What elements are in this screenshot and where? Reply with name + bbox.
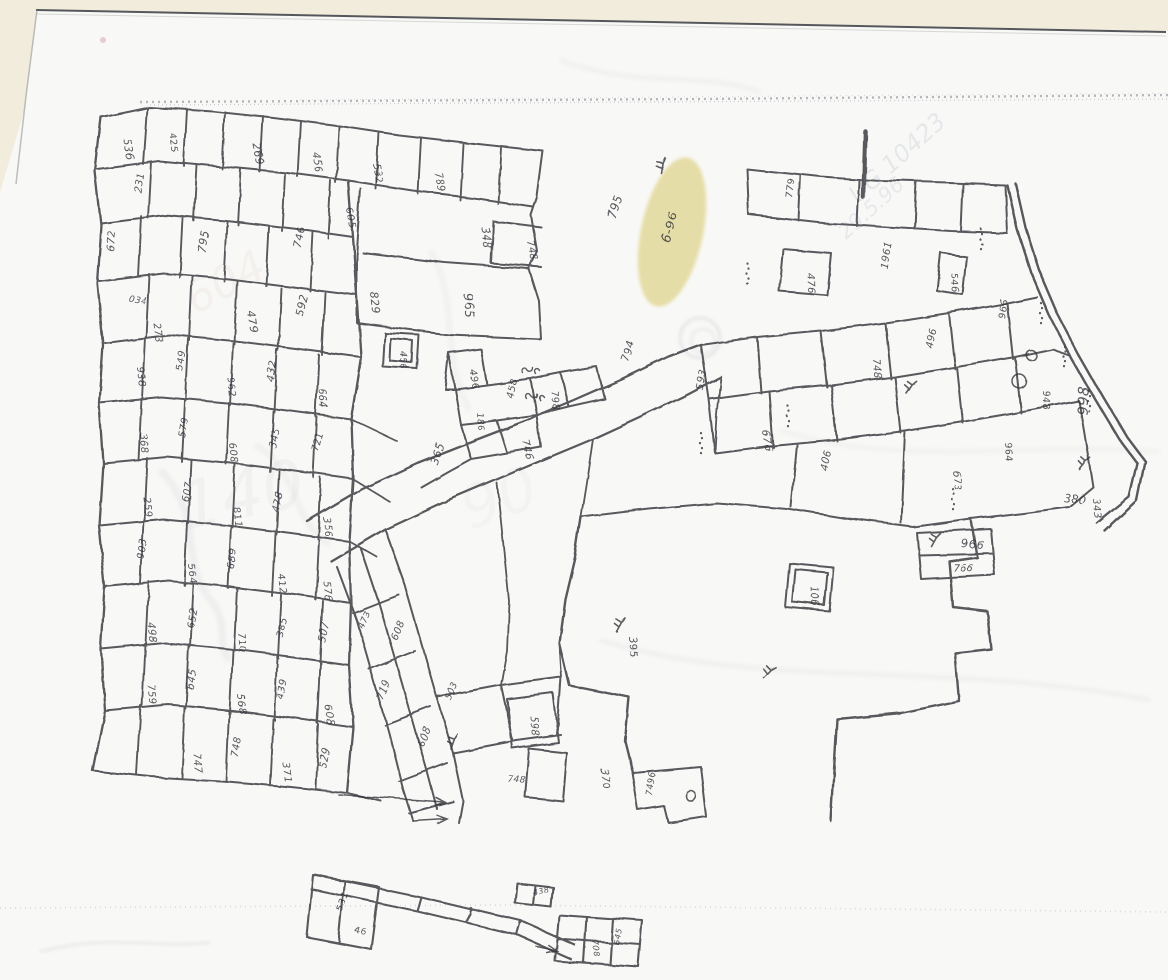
parcel-number: 546	[947, 271, 959, 292]
parcel-number: 368	[135, 431, 148, 453]
parcel-number: 747	[189, 751, 202, 773]
parcel-number: 673	[949, 469, 962, 491]
parcel-number: 748	[506, 773, 526, 785]
parcel-number: 964	[1001, 441, 1014, 463]
parcel-number: 759	[144, 683, 157, 705]
parcel-number: 46	[354, 925, 366, 935]
parcel-number: 748	[869, 357, 882, 379]
parcel-number: 998	[1074, 385, 1092, 414]
parcel-number: 664	[315, 387, 328, 409]
parcel-number: 568	[234, 693, 247, 715]
parcel-number: 259	[139, 495, 152, 517]
parcel-number: 962	[223, 375, 236, 397]
parcel-number: 708	[590, 939, 601, 957]
parcel-number: 395	[625, 635, 640, 659]
parcel-number: 676	[759, 429, 772, 451]
parcel-number: 412	[274, 572, 287, 594]
parcel-number: 948	[1039, 389, 1051, 410]
parcel-number: 564	[184, 562, 197, 584]
parcel-number: 343	[1089, 497, 1102, 519]
parcel-number: 576	[319, 579, 332, 601]
parcel-number: 498	[144, 621, 157, 643]
parcel-number: 672	[104, 229, 117, 251]
parcel-number: 608	[321, 703, 334, 725]
parcel-number: 779	[784, 177, 797, 199]
cadastral-map-scan: 5364252312694565327896057467958296724795…	[0, 0, 1168, 980]
parcel-number: 829	[367, 291, 382, 315]
parcel-number: 186	[473, 411, 485, 430]
parcel-number: 965	[458, 291, 476, 319]
pink-speck	[100, 37, 106, 43]
parcel-number: 106	[807, 585, 820, 607]
parcel-number: 710	[234, 631, 247, 653]
parcel-number: 966	[996, 297, 1009, 319]
parcel-number: 356	[319, 515, 332, 537]
parcel-number: 371	[279, 761, 292, 783]
parcel-number: 966	[960, 536, 983, 551]
parcel-number: 938	[133, 365, 146, 387]
parcel-number: 766	[952, 562, 973, 574]
parcel-number: 476	[803, 272, 815, 293]
parcel-number: 456	[397, 351, 408, 370]
parcel-number: 370	[597, 767, 610, 789]
parcel-number: 598	[527, 715, 540, 737]
